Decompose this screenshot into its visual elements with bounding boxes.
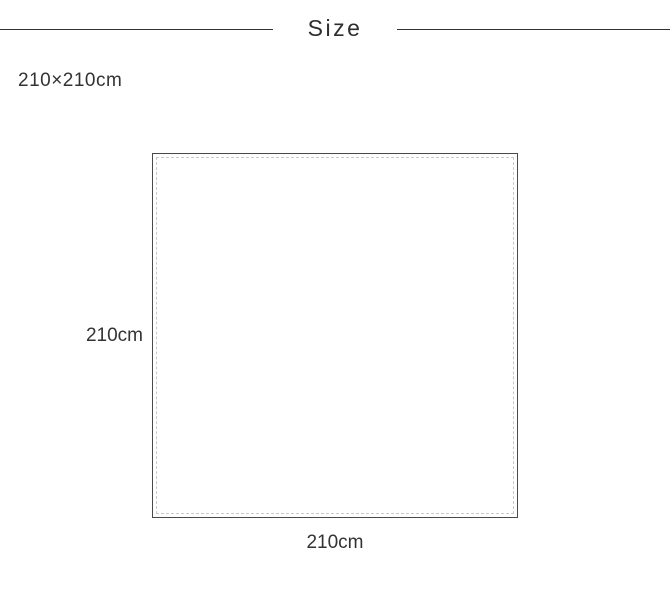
size-diagram-square — [152, 153, 518, 518]
height-dimension-label: 210cm — [0, 325, 143, 347]
product-dimensions-label: 210×210cm — [18, 70, 122, 92]
width-dimension-label: 210cm — [152, 532, 518, 554]
stitch-line — [156, 157, 514, 514]
section-title: Size — [308, 17, 363, 42]
header-rule-left — [0, 29, 273, 30]
size-section-header: Size — [0, 0, 670, 59]
size-diagram-page: Size 210×210cm 210cm 210cm — [0, 0, 670, 600]
header-rule-right — [397, 29, 670, 30]
